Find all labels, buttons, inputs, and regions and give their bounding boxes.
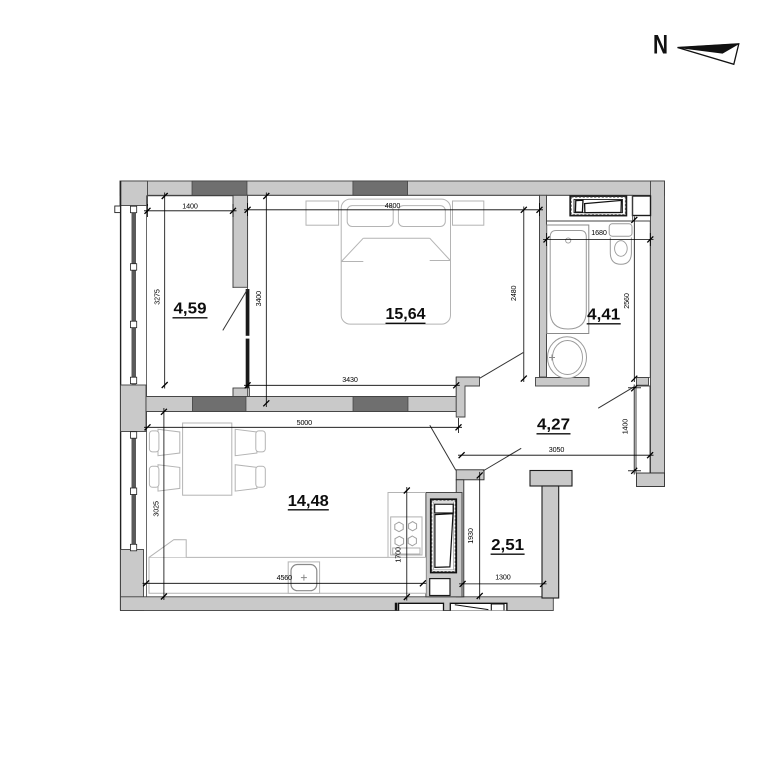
svg-text:3275: 3275	[153, 289, 162, 305]
svg-text:4,41: 4,41	[587, 307, 620, 324]
svg-text:1400: 1400	[621, 419, 630, 435]
svg-text:1680: 1680	[591, 228, 607, 237]
svg-text:14,48: 14,48	[288, 493, 329, 510]
svg-text:5000: 5000	[297, 418, 313, 427]
svg-text:4800: 4800	[385, 201, 401, 210]
svg-text:3025: 3025	[152, 501, 161, 517]
svg-text:1300: 1300	[495, 572, 511, 581]
svg-text:3430: 3430	[342, 375, 358, 384]
svg-text:4560: 4560	[277, 573, 293, 582]
svg-text:1700: 1700	[394, 547, 403, 563]
svg-text:2480: 2480	[509, 285, 518, 301]
svg-text:2,51: 2,51	[491, 537, 524, 554]
svg-text:1400: 1400	[182, 201, 198, 210]
svg-text:2560: 2560	[622, 293, 631, 309]
svg-text:4,59: 4,59	[174, 301, 207, 318]
svg-text:1930: 1930	[466, 528, 475, 544]
svg-text:15,64: 15,64	[386, 306, 426, 323]
svg-text:4,27: 4,27	[537, 417, 570, 434]
svg-text:3050: 3050	[549, 445, 565, 454]
svg-text:N: N	[653, 30, 668, 60]
svg-text:3400: 3400	[254, 291, 263, 307]
